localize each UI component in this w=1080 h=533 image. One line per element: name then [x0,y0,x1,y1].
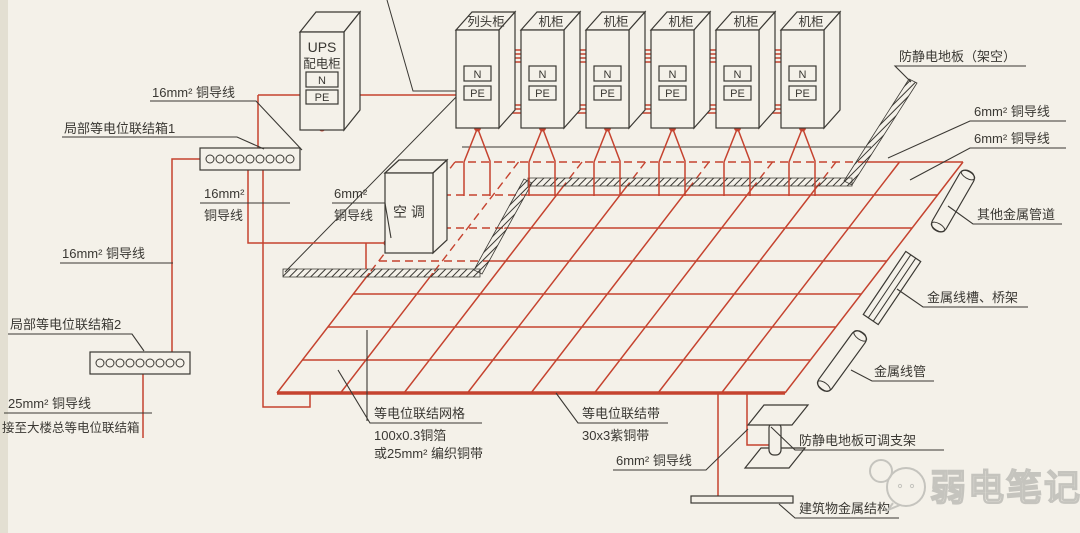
watermark: 弱电笔记 [870,460,1080,510]
bonding-grid-front [277,162,963,393]
cabinet-label: 机柜 [798,15,823,29]
chat-bubble-icon [887,468,925,506]
svg-text:N: N [734,69,742,81]
label-conduit: 金属线管 [874,364,926,379]
label-mesh-3: 或25mm² 编织铜带 [374,446,483,461]
svg-text:N: N [669,69,677,81]
label-tray: 金属线槽、桥架 [927,290,1018,305]
other-metal-pipe [929,168,977,235]
label-building: 建筑物金属结构 [799,501,890,516]
ups-name2: 配电柜 [303,57,341,71]
cabinet-label: 机柜 [538,15,563,29]
label-16mm-mid-2: 铜导线 [204,208,243,223]
equipotential-bonding-diagram: UPS 配电柜 N PE 列头柜 N PE 机柜 N PE 机柜 N [0,0,1080,533]
label-mesh-1: 等电位联结网格 [374,406,465,421]
diagram-page: UPS 配电柜 N PE 列头柜 N PE 机柜 N PE 机柜 N [0,0,1080,533]
cabinet-6: 机柜 N PE [781,12,840,128]
ups-pe-label: PE [315,92,330,104]
svg-text:PE: PE [470,88,485,100]
cabinet-row: 列头柜 N PE 机柜 N PE 机柜 N PE 机柜 N PE [456,12,840,128]
svg-text:N: N [474,69,482,81]
label-antistatic-floor: 防静电地板（架空） [899,49,1016,64]
cabinet-label: 机柜 [668,15,693,29]
label-mesh-2: 100x0.3铜箔 [374,428,446,443]
cabinet-label: 机柜 [603,15,628,29]
label-6mm-right-1: 6mm² 铜导线 [974,104,1050,119]
cabinet-label: 列头柜 [467,15,505,29]
ac-label: 空 调 [393,204,425,220]
watermark-text: 弱电笔记 [930,467,1080,508]
ac-unit: 空 调 [385,160,447,253]
svg-text:PE: PE [535,88,550,100]
cabinet-4: 机柜 N PE [651,12,710,128]
label-pedestal: 防静电地板可调支架 [799,433,916,448]
label-16mm-left: 16mm² 铜导线 [62,246,145,261]
label-6mm-ac-2: 铜导线 [334,208,373,223]
label-25mm-2: 接至大楼总等电位联结箱 [2,420,140,435]
ups-n-label: N [318,75,326,87]
svg-text:N: N [604,69,612,81]
svg-text:PE: PE [600,88,615,100]
cabinet-5: 机柜 N PE [716,12,775,128]
ups-name: UPS [308,39,337,55]
svg-text:N: N [539,69,547,81]
photo-paper-edge [0,0,8,533]
label-16mm-top: 16mm² 铜导线 [152,85,235,100]
cabinet-3: 机柜 N PE [586,12,645,128]
svg-text:PE: PE [795,88,810,100]
label-bonding-box-1: 局部等电位联结箱1 [64,121,175,136]
label-band-1: 等电位联结带 [582,406,660,421]
metal-conduit [815,328,869,394]
label-6mm-bottom: 6mm² 铜导线 [616,453,692,468]
svg-text:N: N [799,69,807,81]
label-bonding-box-2: 局部等电位联结箱2 [10,317,121,332]
label-band-2: 30x3紫铜带 [582,428,649,443]
label-16mm-mid-1: 16mm² [204,186,245,201]
svg-text:PE: PE [665,88,680,100]
cabinet-label: 机柜 [733,15,758,29]
label-25mm-1: 25mm² 铜导线 [8,396,91,411]
label-other-pipes: 其他金属管道 [977,207,1055,222]
label-6mm-ac-1: 6mm² [334,186,368,201]
label-6mm-right-2: 6mm² 铜导线 [974,131,1050,146]
building-metal-structure [691,496,793,503]
svg-text:PE: PE [730,88,745,100]
bonding-box-1 [200,148,300,170]
cabinet-head: 列头柜 N PE [456,12,515,128]
cabinet-2: 机柜 N PE [521,12,580,128]
bonding-box-2 [90,352,190,374]
metal-cable-tray [863,251,920,324]
ups-cabinet: UPS 配电柜 N PE [300,12,360,130]
chat-bubble-small-icon [870,460,892,482]
